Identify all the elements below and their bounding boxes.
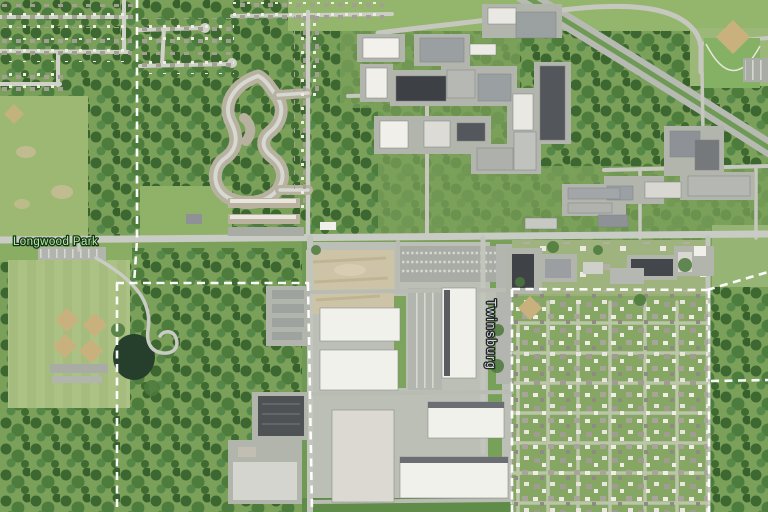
townhouse-rows (228, 198, 304, 236)
satellite-imagery: Longwood Park Twinsburg (0, 0, 768, 512)
road-label: Twinsburg (484, 299, 498, 370)
boundary-horizontal-east (512, 289, 707, 290)
residential-grid-houses (512, 294, 708, 512)
park-label: Longwood Park (13, 236, 98, 248)
satellite-map-viewport[interactable]: Longwood Park Twinsburg (0, 0, 768, 512)
parking-lot (398, 246, 512, 282)
